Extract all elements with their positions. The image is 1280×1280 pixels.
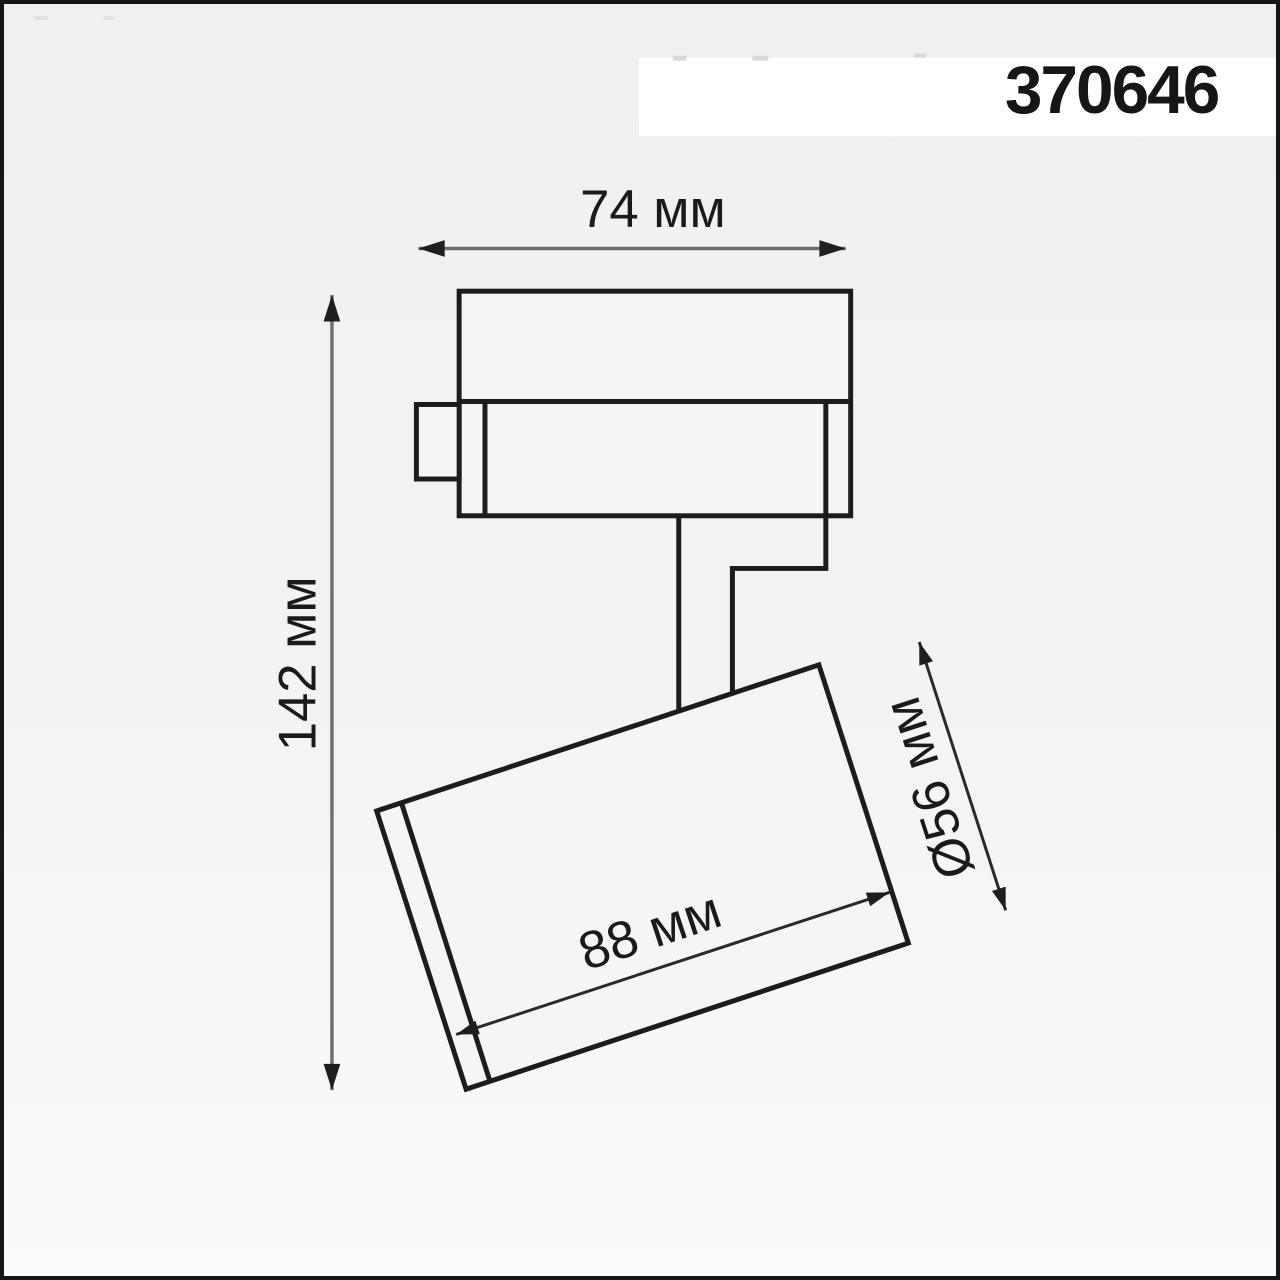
adapter-side-tab: [416, 404, 459, 479]
lamp-head-outline: [377, 665, 909, 1089]
dim-label-total-height: 142 мм: [269, 576, 328, 751]
watermark-dash: [103, 16, 114, 20]
dim-label-head-diameter: Ø56 мм: [872, 690, 986, 886]
watermark-dash: [914, 54, 926, 58]
diagram-canvas: 370646 74 мм 142 мм 88 мм Ø56 мм: [0, 0, 1280, 1280]
dimension-drawing: 370646 74 мм 142 мм 88 мм Ø56 мм: [4, 4, 1276, 1276]
watermark-dash: [34, 16, 48, 20]
watermark-dash: [752, 56, 768, 61]
dim-label-track-width: 74 мм: [580, 180, 726, 239]
watermark-dash: [673, 56, 687, 61]
product-code: 370646: [1005, 53, 1219, 128]
